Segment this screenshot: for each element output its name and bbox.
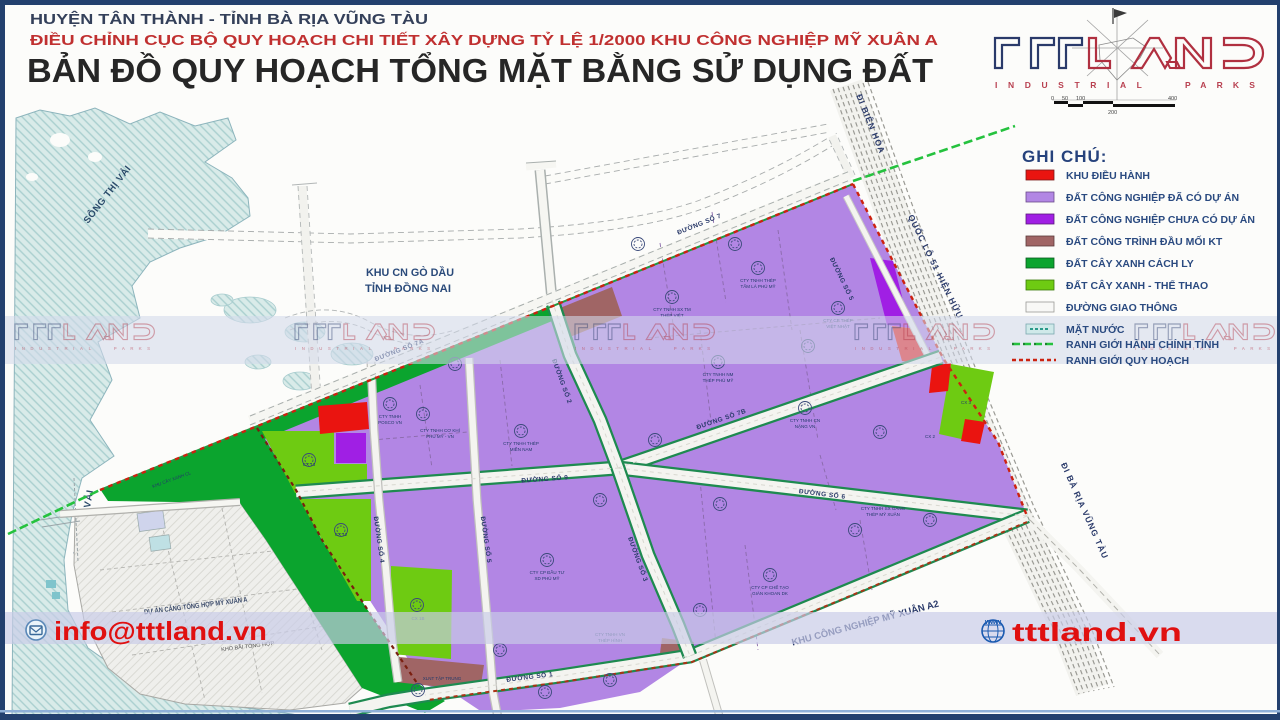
svg-text:100: 100 [1076,96,1085,102]
svg-text:RANH GIỚI QUY HOẠCH: RANH GIỚI QUY HOẠCH [1066,354,1189,367]
svg-text:MẶT NƯỚC: MẶT NƯỚC [1066,323,1125,336]
svg-text:POSCO VN: POSCO VN [378,420,402,425]
svg-text:CX 13: CX 13 [303,462,316,467]
svg-text:RANH GIỚI HÀNH CHÍNH TỈNH: RANH GIỚI HÀNH CHÍNH TỈNH [1066,338,1219,351]
svg-text:CX 3: CX 3 [961,400,972,405]
svg-text:THÉP PHÚ MỸ: THÉP PHÚ MỸ [703,377,734,383]
svg-text:400: 400 [1168,96,1177,102]
svg-text:CTY TNHH: CTY TNHH [379,414,402,419]
svg-text:50: 50 [1062,96,1068,102]
svg-text:CTY TNHH THÉP: CTY TNHH THÉP [740,277,776,283]
svg-text:CTY CP CHẾ TẠO: CTY CP CHẾ TẠO [751,584,789,590]
svg-text:CTY TNHH CN: CTY TNHH CN [790,418,820,423]
svg-text:CX 2: CX 2 [925,434,936,439]
svg-text:CTY CP ĐẦU TƯ: CTY CP ĐẦU TƯ [530,569,565,575]
svg-text:CTY TNHH NM: CTY TNHH NM [703,372,734,377]
svg-text:GHI CHÚ:: GHI CHÚ: [1022,147,1107,166]
svg-text:0: 0 [1051,96,1054,102]
svg-text:GIÀN KHOAN DK: GIÀN KHOAN DK [752,590,788,596]
svg-text:XD PHÚ MỸ: XD PHÚ MỸ [534,575,559,581]
svg-text:CTY TNHH THÉP: CTY TNHH THÉP [503,440,539,446]
svg-text:HUYỆN TÂN THÀNH - TỈNH BÀ RỊA: HUYỆN TÂN THÀNH - TỈNH BÀ RỊA VŨNG TÀU [30,10,428,28]
svg-text:THÉP MỸ XUÂN: THÉP MỸ XUÂN [866,511,900,517]
svg-text:MIỀN NAM: MIỀN NAM [510,446,533,452]
svg-text:ĐIỀU CHỈNH CỤC BỘ QUY HOẠCH CH: ĐIỀU CHỈNH CỤC BỘ QUY HOẠCH CHI TIẾT XÂY… [30,31,939,49]
svg-text:ĐẤT CÔNG NGHIỆP ĐÃ CÓ DỰ ÁN: ĐẤT CÔNG NGHIỆP ĐÃ CÓ DỰ ÁN [1066,191,1239,204]
svg-text:TỈNH ĐỒNG NAI: TỈNH ĐỒNG NAI [365,282,451,295]
svg-text:info@tttland.vn: info@tttland.vn [54,616,267,646]
svg-text:XLNT TẬP TRUNG: XLNT TẬP TRUNG [423,675,462,681]
svg-text:TẤM LÁ PHÚ MỸ: TẤM LÁ PHÚ MỸ [740,283,775,289]
svg-text:ĐẤT CÔNG NGHIỆP CHƯA CÓ DỰ ÁN: ĐẤT CÔNG NGHIỆP CHƯA CÓ DỰ ÁN [1066,213,1255,226]
svg-text:tttland.vn: tttland.vn [1012,617,1182,647]
svg-text:KHU ĐIỀU HÀNH: KHU ĐIỀU HÀNH [1066,169,1150,182]
svg-text:BẢN ĐỒ QUY HOẠCH TỔNG MẶT BẰNG: BẢN ĐỒ QUY HOẠCH TỔNG MẶT BẰNG SỬ DỤNG Đ… [27,52,933,89]
svg-text:CTY TNHH CƠ KHÍ: CTY TNHH CƠ KHÍ [420,427,460,433]
svg-text:KHU CN GÒ DẦU: KHU CN GÒ DẦU [366,266,454,279]
svg-text:www: www [984,619,1002,626]
svg-text:ĐẤT CÂY XANH - THỂ THAO: ĐẤT CÂY XANH - THỂ THAO [1066,279,1208,292]
svg-text:CX 12: CX 12 [335,532,348,537]
svg-text:CTY TNHH SX GANG: CTY TNHH SX GANG [861,506,906,511]
svg-text:ĐƯỜNG GIAO THÔNG: ĐƯỜNG GIAO THÔNG [1066,301,1178,314]
svg-text:ĐẤT CÂY XANH CÁCH LY: ĐẤT CÂY XANH CÁCH LY [1066,257,1194,270]
svg-text:PHÚ MỸ - VN: PHÚ MỸ - VN [426,433,454,439]
svg-text:200: 200 [1108,110,1117,116]
svg-text:CTY TNHH SX TM: CTY TNHH SX TM [653,307,691,312]
svg-text:NẶNG VN: NẶNG VN [795,423,816,429]
svg-text:ĐẤT CÔNG TRÌNH ĐẦU MỐI KT: ĐẤT CÔNG TRÌNH ĐẦU MỐI KT [1066,234,1223,248]
